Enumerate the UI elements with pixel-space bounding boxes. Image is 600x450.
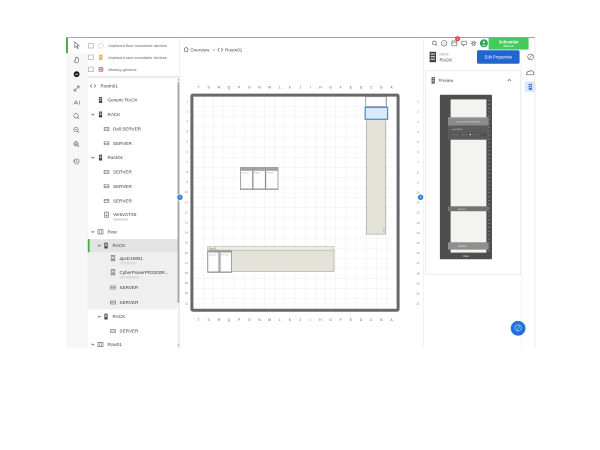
- svg-text:15: 15: [416, 241, 420, 245]
- svg-text:10: 10: [185, 190, 189, 194]
- svg-text:20: 20: [185, 291, 189, 295]
- svg-text:L: L: [279, 318, 281, 322]
- svg-text:21: 21: [185, 301, 189, 305]
- svg-text:?: ?: [443, 42, 445, 46]
- svg-text:17: 17: [185, 261, 189, 265]
- svg-text:Room01: Room01: [101, 84, 119, 89]
- svg-text:19: 19: [185, 281, 189, 285]
- svg-text:11: 11: [416, 201, 419, 205]
- svg-text:SERVER: SERVER: [113, 141, 132, 146]
- svg-text:SERVER: SERVER: [113, 198, 132, 203]
- svg-text:SERVER: SERVER: [120, 300, 139, 305]
- svg-text:RACK: RACK: [254, 172, 260, 175]
- svg-text:O: O: [248, 86, 251, 90]
- svg-text:Overview: Overview: [190, 47, 210, 52]
- svg-text:Schneider: Schneider: [499, 39, 519, 44]
- svg-text:Q: Q: [228, 86, 231, 90]
- svg-text:apcE19: apcE19: [209, 254, 217, 256]
- svg-text:ØElectric: ØElectric: [503, 44, 514, 48]
- svg-text:RACK: RACK: [113, 243, 127, 248]
- svg-text:F: F: [340, 86, 342, 90]
- svg-text:I: I: [310, 86, 311, 90]
- svg-text:16: 16: [416, 251, 420, 255]
- svg-text:21: 21: [416, 302, 420, 306]
- svg-text:Unplaced rack mountable device: Unplaced rack mountable devices: [108, 55, 166, 60]
- svg-text:12: 12: [416, 211, 420, 215]
- svg-text:CyberPowerPR2200RT2U: CyberPowerPR2200RT2U: [456, 121, 481, 124]
- svg-text:apcE19901: apcE19901: [120, 256, 144, 261]
- svg-text:17: 17: [416, 261, 420, 265]
- svg-text:SERVER: SERVER: [120, 285, 139, 290]
- svg-text:20: 20: [416, 292, 420, 296]
- svg-text:PR 220: PR 220: [221, 254, 229, 256]
- svg-text:RACK: RACK: [440, 58, 454, 63]
- svg-text:13: 13: [185, 221, 189, 225]
- svg-text:M: M: [268, 318, 271, 322]
- svg-text:G: G: [329, 86, 332, 90]
- svg-text:F: F: [340, 318, 342, 322]
- svg-text:Generic RACK: Generic RACK: [108, 98, 139, 103]
- svg-text:I: I: [310, 318, 311, 322]
- svg-text:Rack01: Rack01: [267, 173, 275, 175]
- svg-text:Generic...: Generic...: [242, 173, 251, 175]
- svg-text:Edit Properties: Edit Properties: [485, 55, 512, 60]
- svg-text:SERVER: SERVER: [113, 170, 132, 175]
- svg-text:Room01: Room01: [225, 47, 243, 52]
- svg-text:G: G: [329, 318, 332, 322]
- svg-text:14: 14: [416, 231, 420, 235]
- svg-text:SERVER: SERVER: [113, 184, 132, 189]
- svg-text:Rack: Rack: [463, 255, 469, 258]
- svg-text:>: >: [213, 47, 216, 52]
- svg-text:M: M: [268, 86, 271, 90]
- svg-text:J: J: [299, 318, 301, 322]
- svg-text:11: 11: [185, 200, 188, 204]
- svg-text:L: L: [279, 86, 281, 90]
- svg-text:Preview: Preview: [439, 78, 454, 83]
- svg-text:15: 15: [185, 241, 189, 245]
- svg-text:12: 12: [185, 210, 189, 214]
- svg-text:T: T: [197, 318, 199, 322]
- svg-text:SERVER: SERVER: [458, 209, 467, 211]
- svg-text:Row: Row: [384, 227, 386, 232]
- svg-text:Row01: Row01: [108, 342, 123, 347]
- svg-text:3: 3: [457, 37, 459, 41]
- svg-text:J: J: [299, 86, 301, 90]
- svg-text:CyberPowerPR2200R...: CyberPowerPR2200R...: [120, 270, 169, 275]
- svg-text:Q: Q: [228, 318, 231, 322]
- svg-text:13: 13: [416, 221, 420, 225]
- svg-text:T: T: [197, 86, 199, 90]
- svg-text:RACK: RACK: [113, 314, 127, 319]
- svg-text:O: O: [248, 318, 251, 322]
- svg-text:18: 18: [185, 271, 189, 275]
- svg-text:Rack01: Rack01: [384, 99, 386, 107]
- svg-text:SERVER: SERVER: [120, 329, 139, 334]
- svg-text:16: 16: [185, 251, 189, 255]
- svg-text:Rack01: Rack01: [108, 155, 124, 160]
- svg-text:VertivGTX5: VertivGTX5: [113, 212, 137, 217]
- svg-text:RACK: RACK: [440, 52, 450, 56]
- svg-text:14: 14: [185, 231, 189, 235]
- svg-text:apcE19901: apcE19901: [452, 129, 463, 131]
- svg-text:Dell SERVER: Dell SERVER: [113, 127, 142, 132]
- svg-text:10: 10: [416, 191, 420, 195]
- svg-text:SERVER: SERVER: [458, 246, 467, 248]
- svg-text:Unplaced floor mountable devic: Unplaced floor mountable devices: [108, 43, 167, 48]
- svg-text:18: 18: [416, 271, 420, 275]
- svg-text:Missing genome: Missing genome: [108, 67, 136, 72]
- svg-text:RACK: RACK: [108, 112, 122, 117]
- svg-text:19: 19: [416, 281, 420, 285]
- svg-text:Row: Row: [108, 229, 118, 234]
